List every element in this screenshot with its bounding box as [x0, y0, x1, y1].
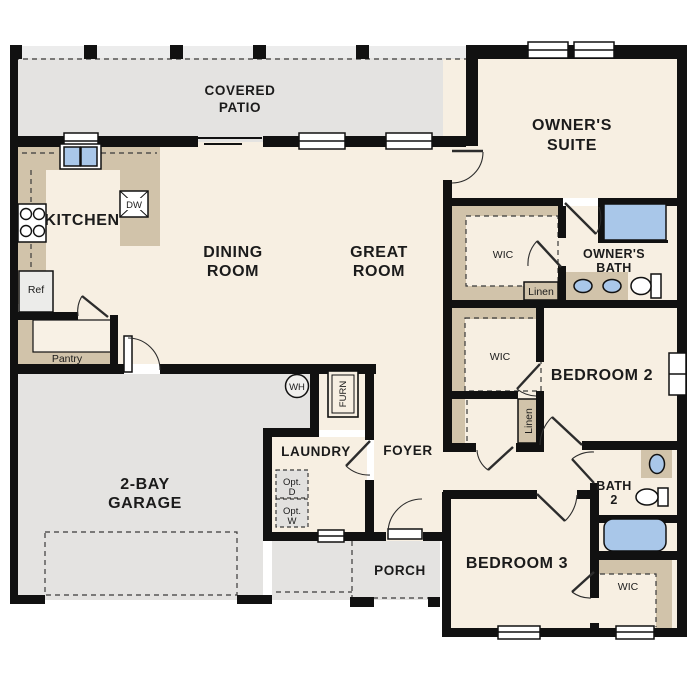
hall-linen-label: Linen — [523, 408, 535, 434]
bath2-label: 2 — [610, 493, 617, 507]
window — [386, 133, 432, 149]
window — [299, 133, 345, 149]
owners-suite-label: SUITE — [547, 137, 597, 154]
floor-plan-canvas: COVERED PATIO OWNER'S SUITE KITCHEN DINI… — [0, 0, 687, 687]
bedroom2-wic-label: WIC — [490, 351, 511, 363]
great-room-label: GREAT — [350, 244, 408, 261]
foyer-label: FOYER — [383, 443, 433, 458]
laundry-label: LAUNDRY — [281, 444, 351, 459]
owners-linen-label: Linen — [528, 286, 554, 298]
owners-wic-label: WIC — [493, 249, 514, 261]
dining-room-label: ROOM — [207, 263, 259, 280]
pantry-label: Pantry — [52, 353, 83, 365]
bath2-label: BATH — [596, 479, 631, 493]
window — [616, 626, 654, 639]
opt-dryer-label: D — [289, 487, 296, 498]
bedroom2-label: BEDROOM 2 — [551, 367, 653, 384]
bath2-tub-icon — [604, 519, 666, 551]
window — [574, 42, 614, 58]
bedroom3-label: BEDROOM 3 — [466, 555, 568, 572]
opt-washer-label: W — [288, 516, 297, 527]
kitchen-label: KITCHEN — [44, 212, 119, 229]
sliding-glass-door — [198, 136, 263, 147]
garage-floor — [18, 428, 263, 600]
covered-patio-label: PATIO — [219, 100, 261, 115]
furn-label: FURN — [338, 381, 349, 408]
kitchen-sink-icon — [60, 144, 101, 169]
dining-room-label: DINING — [203, 244, 263, 261]
garage-label: GARAGE — [108, 495, 182, 512]
window — [669, 353, 686, 395]
owners-bath-label: OWNER'S — [583, 247, 645, 261]
stove-icon — [18, 204, 46, 242]
window — [528, 42, 568, 58]
bedroom3-wic-label: WIC — [618, 581, 639, 593]
dw-label: DW — [126, 200, 142, 211]
owners-tub-icon — [604, 204, 666, 240]
vanity-sink-icon — [603, 280, 621, 293]
owners-bath-label: BATH — [596, 261, 631, 275]
hall-coat-closet — [452, 399, 516, 443]
window — [318, 530, 344, 542]
owners-suite-label: OWNER'S — [532, 117, 612, 134]
bedroom3-wic-shelving — [599, 560, 672, 628]
great-room-label: ROOM — [353, 263, 405, 280]
garage-floor-notch — [18, 374, 310, 428]
wh-label: WH — [289, 382, 305, 393]
vanity-sink-icon — [574, 280, 592, 293]
window — [498, 626, 540, 639]
floor-plan: COVERED PATIO OWNER'S SUITE KITCHEN DINI… — [0, 0, 687, 687]
toilet-icon — [636, 488, 668, 506]
covered-patio-label: COVERED — [205, 83, 276, 98]
ref-label: Ref — [28, 284, 44, 296]
porch-label: PORCH — [374, 563, 426, 578]
vanity-sink-icon — [650, 455, 665, 474]
garage-label: 2-BAY — [120, 476, 170, 493]
